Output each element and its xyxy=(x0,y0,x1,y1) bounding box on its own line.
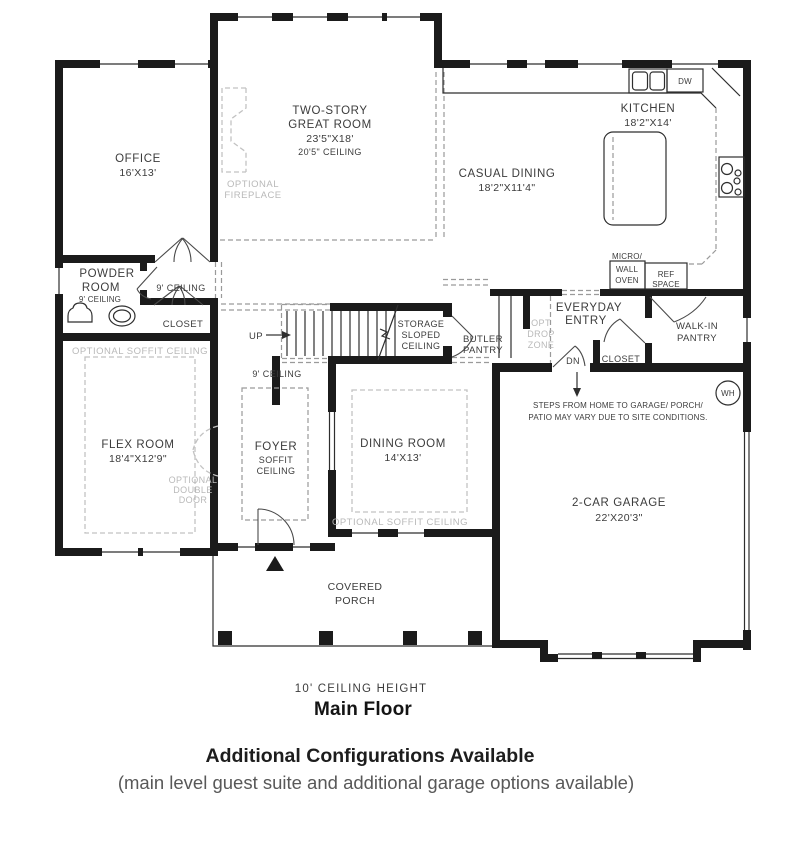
entry-closet-door xyxy=(604,319,645,343)
everyday-entry-label-1: EVERYDAY xyxy=(556,302,622,314)
entry-closet-label: CLOSET xyxy=(602,354,641,364)
steps-note-line-1: STEPS FROM HOME TO GARAGE/ PORCH/ xyxy=(533,401,703,410)
foyer-label: FOYER xyxy=(255,441,298,453)
opt-drop-zone-label-3: ZONE xyxy=(528,340,555,350)
foyer-dining-cased-opening xyxy=(330,412,335,470)
great-room-dims: 23'5"X18' xyxy=(306,133,354,145)
optional-fireplace-outline xyxy=(222,88,246,172)
foyer-soffit-label-2: CEILING xyxy=(257,466,296,476)
powder-sink-icon xyxy=(109,306,135,326)
water-heater-label: WH xyxy=(721,389,735,398)
toilet-icon xyxy=(68,303,92,322)
optional-double-door-label-2: DOUBLE xyxy=(173,485,212,495)
powder-ceiling-label: 9' CEILING xyxy=(79,295,121,304)
floor-plan-page: OFFICE 16'X13' TWO-STORY GREAT ROOM 23'5… xyxy=(0,0,810,860)
front-door xyxy=(258,509,294,545)
oven-label: OVEN xyxy=(615,276,638,285)
optional-soffit-dining-outline xyxy=(352,390,467,512)
ref-label: REF xyxy=(658,270,675,279)
powder-room-label-2: ROOM xyxy=(82,282,120,294)
optional-double-door-label-1: OPTIONAL xyxy=(169,475,218,485)
opt-drop-zone-label-1: OPT xyxy=(531,318,551,328)
kitchen-sink-icon xyxy=(629,69,667,93)
stairs xyxy=(287,305,398,360)
casual-dining-label: CASUAL DINING xyxy=(459,168,556,180)
office-dims: 16'X13' xyxy=(119,167,156,179)
great-room-label-1: TWO-STORY xyxy=(292,105,367,117)
kitchen-dims: 18'2"X14' xyxy=(624,117,672,129)
great-room-ceiling: 20'5" CEILING xyxy=(298,147,362,157)
kitchen-island xyxy=(604,132,666,225)
garage-label: 2-CAR GARAGE xyxy=(572,497,666,509)
covered-porch-label-2: PORCH xyxy=(335,595,375,607)
kitchen-counter xyxy=(443,68,740,264)
dining-room-dims: 14'X13' xyxy=(384,452,421,464)
micro-label: MICRO/ xyxy=(612,252,643,261)
ceiling-height-note: 10' CEILING HEIGHT xyxy=(0,683,722,695)
cooktop-icon xyxy=(719,157,744,197)
garage-side-window xyxy=(745,432,750,630)
corridor-ceiling-label: 9' CEILING xyxy=(156,283,205,293)
configurations-title: Additional Configurations Available xyxy=(0,745,740,768)
flex-room-dims: 18'4"X12'9" xyxy=(109,453,167,465)
foyer-soffit-outline xyxy=(242,388,308,520)
office-label: OFFICE xyxy=(115,153,161,165)
great-room-label-2: GREAT ROOM xyxy=(288,119,372,131)
walkin-pantry-door xyxy=(650,297,706,322)
dn-arrow xyxy=(573,372,581,397)
storage-label-2: SLOPED xyxy=(402,330,441,340)
flex-room-label: FLEX ROOM xyxy=(101,439,174,451)
butler-pantry-label-1: BUTLER xyxy=(463,334,503,345)
butler-pantry-label-2: PANTRY xyxy=(463,345,503,356)
walkin-pantry-label-2: PANTRY xyxy=(677,333,717,344)
casual-dining-dims: 18'2"X11'4" xyxy=(478,182,535,194)
kitchen-label: KITCHEN xyxy=(621,103,676,115)
configurations-subtitle: (main level guest suite and additional g… xyxy=(0,772,752,794)
closet-label: CLOSET xyxy=(163,319,203,330)
space-label: SPACE xyxy=(652,280,680,289)
dining-soffit-label: OPTIONAL SOFFIT CEILING xyxy=(332,517,468,528)
garage-dims: 22'X20'3" xyxy=(595,512,643,524)
storage-label-3: CEILING xyxy=(402,341,441,351)
storage-label-1: STORAGE xyxy=(398,319,445,329)
up-label: UP xyxy=(249,331,263,342)
office-double-door xyxy=(155,238,210,262)
covered-porch-label-1: COVERED xyxy=(328,581,383,593)
floor-plan-drawing: OFFICE 16'X13' TWO-STORY GREAT ROOM 23'5… xyxy=(0,0,810,670)
front-door-marker xyxy=(266,556,284,571)
room-labels: OFFICE 16'X13' TWO-STORY GREAT ROOM 23'5… xyxy=(72,77,735,607)
hall-ceiling-label: 9' CEILING xyxy=(252,369,301,379)
foyer-soffit-label-1: SOFFIT xyxy=(259,455,293,465)
wall-label: WALL xyxy=(616,265,639,274)
steps-note-line-2: PATIO MAY VARY DUE TO SITE CONDITIONS. xyxy=(528,413,707,422)
everyday-entry-label-2: ENTRY xyxy=(565,315,607,327)
dining-room-label: DINING ROOM xyxy=(360,438,446,450)
walkin-pantry-label-1: WALK-IN xyxy=(676,321,718,332)
flex-soffit-label: OPTIONAL SOFFIT CEILING xyxy=(72,346,208,357)
powder-room-label-1: POWDER xyxy=(79,268,134,280)
optional-fireplace-label-1: OPTIONAL xyxy=(227,179,279,190)
opt-drop-zone-label-2: DROP xyxy=(527,329,555,339)
dishwasher-label: DW xyxy=(678,77,692,86)
floor-title: Main Floor xyxy=(0,699,726,721)
optional-double-door-label-3: DOOR xyxy=(179,495,208,505)
optional-fireplace-label-2: FIREPLACE xyxy=(224,190,281,201)
dn-label: DN xyxy=(566,356,580,366)
garage-door xyxy=(558,652,693,659)
